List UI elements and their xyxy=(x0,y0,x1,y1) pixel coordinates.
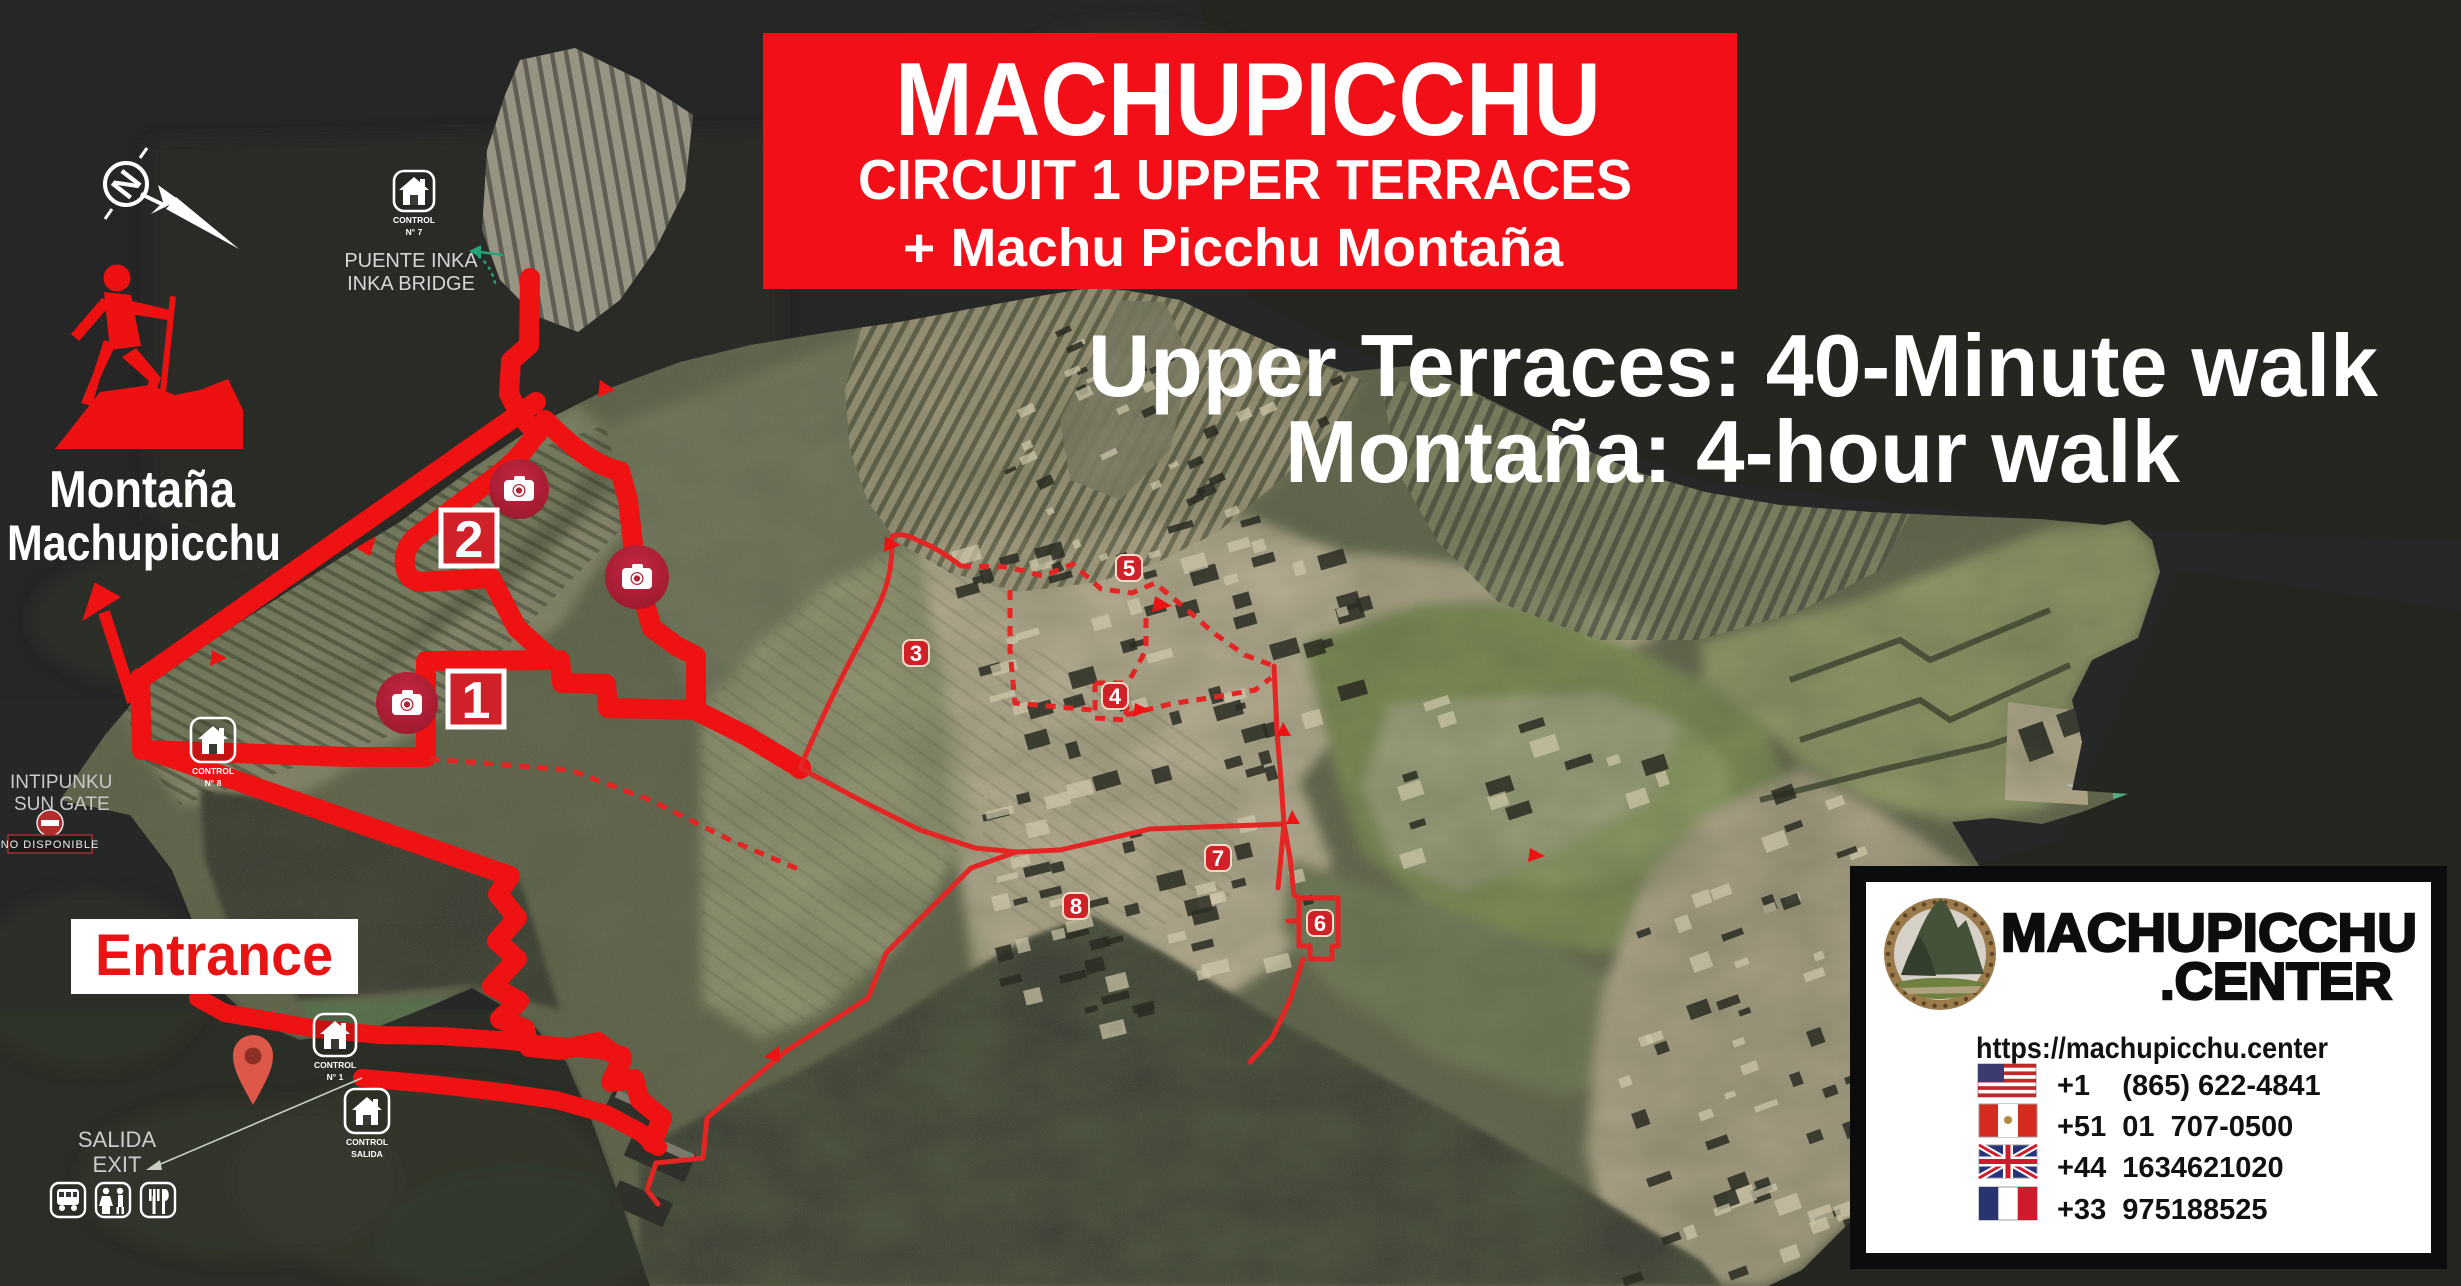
svg-text:+51 01 707-0500: +51 01 707-0500 xyxy=(2057,1111,2293,1143)
svg-text:https://machupicchu.center: https://machupicchu.center xyxy=(1976,1032,2328,1065)
svg-text:SALIDA: SALIDA xyxy=(78,1127,157,1152)
svg-text:4: 4 xyxy=(1109,684,1122,709)
svg-text:3: 3 xyxy=(910,641,922,666)
svg-text:MACHUPICCHU: MACHUPICCHU xyxy=(895,42,1601,158)
svg-text:+44 1634621020: +44 1634621020 xyxy=(2057,1152,2284,1184)
svg-text:CONTROL: CONTROL xyxy=(346,1137,388,1147)
svg-text:Upper Terraces: 40-Minute walk: Upper Terraces: 40-Minute walk xyxy=(1088,316,2379,415)
svg-text:CONTROL: CONTROL xyxy=(393,215,435,225)
svg-text:8: 8 xyxy=(1070,894,1082,919)
svg-text:.CENTER: .CENTER xyxy=(2160,953,2392,1011)
svg-text:Montaña: Montaña xyxy=(49,461,236,519)
svg-text:SUN GATE: SUN GATE xyxy=(14,794,110,815)
svg-text:+33 975188525: +33 975188525 xyxy=(2057,1194,2267,1226)
svg-text:2: 2 xyxy=(455,511,484,569)
svg-text:+ Machu Picchu Montaña: + Machu Picchu Montaña xyxy=(903,218,1564,278)
svg-text:INTIPUNKU: INTIPUNKU xyxy=(10,772,112,793)
svg-text:NO DISPONIBLE: NO DISPONIBLE xyxy=(1,839,100,851)
svg-text:PUENTE INKA: PUENTE INKA xyxy=(344,250,478,272)
svg-text:N° 7: N° 7 xyxy=(406,227,423,237)
svg-text:EXIT: EXIT xyxy=(93,1152,142,1177)
svg-text:N° 1: N° 1 xyxy=(327,1072,344,1082)
svg-text:Montaña: 4-hour walk: Montaña: 4-hour walk xyxy=(1285,402,2181,501)
svg-text:INKA BRIDGE: INKA BRIDGE xyxy=(347,273,475,295)
svg-text:1: 1 xyxy=(462,672,491,730)
svg-text:5: 5 xyxy=(1123,556,1135,581)
svg-text:7: 7 xyxy=(1212,846,1224,871)
svg-text:CONTROL: CONTROL xyxy=(314,1060,356,1070)
svg-text:6: 6 xyxy=(1314,911,1326,936)
svg-text:+1 (865) 622-4841: +1 (865) 622-4841 xyxy=(2057,1070,2321,1102)
svg-text:CONTROL: CONTROL xyxy=(192,766,234,776)
svg-text:SALIDA: SALIDA xyxy=(351,1149,383,1159)
svg-text:Machupicchu: Machupicchu xyxy=(7,515,281,571)
svg-text:Entrance: Entrance xyxy=(95,923,333,988)
svg-text:CIRCUIT 1 UPPER TERRACES: CIRCUIT 1 UPPER TERRACES xyxy=(858,148,1632,212)
svg-text:N° 8: N° 8 xyxy=(205,778,222,788)
